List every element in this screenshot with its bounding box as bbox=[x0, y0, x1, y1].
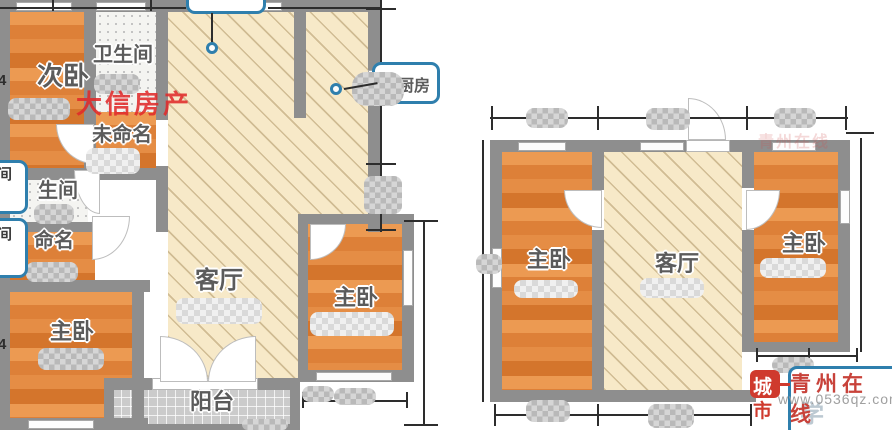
edge-callout-label-bottom: 衣帽间 bbox=[0, 226, 19, 245]
callout-point-marker bbox=[206, 42, 218, 54]
wall bbox=[298, 214, 308, 382]
wall bbox=[742, 140, 754, 352]
mosaic-blur bbox=[514, 280, 578, 298]
wall bbox=[104, 378, 114, 430]
dimension-tick bbox=[756, 348, 758, 362]
callout-point-marker bbox=[330, 83, 342, 95]
dimension-tick bbox=[366, 229, 396, 231]
mosaic-blur bbox=[302, 386, 334, 402]
label-bathroom-mid: 生间 bbox=[28, 174, 88, 203]
dimension-tick bbox=[366, 8, 396, 10]
window bbox=[640, 142, 684, 151]
mosaic-blur bbox=[774, 108, 816, 128]
mosaic-blur bbox=[352, 72, 404, 106]
wall bbox=[0, 280, 150, 292]
dimension-tick bbox=[52, 0, 54, 11]
wall bbox=[290, 378, 300, 430]
label-unnamed-mid: 命名 bbox=[24, 224, 84, 253]
dimension-tick bbox=[406, 392, 408, 408]
mosaic-blur bbox=[364, 176, 402, 214]
dimension-tick bbox=[750, 404, 752, 426]
mosaic-blur bbox=[476, 254, 502, 274]
mosaic-blur bbox=[34, 204, 74, 224]
mosaic-blur bbox=[38, 348, 104, 370]
label2-master-bedroom-right: 主卧 bbox=[766, 226, 842, 258]
seal-char-top: 城 bbox=[753, 372, 772, 399]
window bbox=[518, 142, 566, 151]
wall bbox=[294, 12, 306, 118]
site-seal-logo: 城 bbox=[750, 370, 780, 398]
faint-watermark-tile: 青州在线 bbox=[758, 128, 830, 152]
site-url-watermark: www.0536qz.com bbox=[778, 391, 892, 407]
callout-box-top bbox=[186, 0, 266, 14]
dimension-tick bbox=[597, 404, 599, 426]
mosaic-blur bbox=[310, 312, 394, 336]
seal-char-bottom: 市 bbox=[753, 396, 772, 423]
label-balcony: 阳台 bbox=[178, 384, 246, 416]
mosaic-blur bbox=[760, 258, 826, 278]
edge-callout-label-top: 卫生间 bbox=[0, 166, 19, 185]
dim-digit-left-lower: 4 bbox=[0, 336, 6, 353]
label-bathroom-top: 卫生间 bbox=[84, 38, 162, 67]
wall bbox=[592, 140, 604, 402]
dimension-tick bbox=[597, 106, 599, 130]
dimension-line bbox=[0, 7, 186, 9]
wall bbox=[742, 342, 850, 352]
mosaic-blur bbox=[526, 108, 568, 128]
dimension-tick bbox=[846, 132, 874, 134]
label-unnamed-top: 未命名 bbox=[82, 118, 162, 147]
door-arc bbox=[92, 216, 130, 260]
dimension-tick bbox=[404, 220, 438, 222]
label2-living-room: 客厅 bbox=[644, 246, 710, 278]
edge-callout-box-top: 卫生间 bbox=[0, 160, 28, 214]
dimension-line bbox=[423, 220, 425, 426]
mosaic-blur bbox=[646, 108, 690, 130]
floorplan-image: 厨房 卫生间 衣帽间 次卧 卫生间 未命名 生间 命名 主卧 客厅 主卧 阳台 … bbox=[0, 0, 892, 430]
window bbox=[28, 420, 94, 429]
window bbox=[840, 190, 850, 224]
seal-dash bbox=[780, 383, 790, 386]
mosaic-blur bbox=[526, 400, 570, 422]
wall bbox=[0, 0, 10, 430]
mosaic-blur bbox=[8, 98, 70, 120]
entry-door-arc bbox=[688, 98, 726, 140]
mosaic-blur bbox=[640, 278, 704, 298]
mosaic-blur bbox=[176, 298, 262, 324]
label-living-room: 客厅 bbox=[186, 260, 252, 295]
label2-master-bedroom-left: 主卧 bbox=[516, 242, 582, 274]
dimension-tick bbox=[746, 106, 748, 130]
window bbox=[403, 250, 413, 306]
label-master-bedroom-left: 主卧 bbox=[40, 314, 104, 346]
label-master-bedroom-right: 主卧 bbox=[318, 280, 394, 312]
window bbox=[316, 372, 392, 381]
dimension-tick bbox=[366, 163, 396, 165]
mosaic-blur bbox=[86, 148, 140, 174]
entry-door-sill bbox=[686, 140, 730, 152]
dimension-line bbox=[860, 138, 862, 352]
agency-watermark: 大信房产 bbox=[76, 84, 192, 121]
mosaic-blur bbox=[26, 262, 78, 282]
mosaic-blur bbox=[648, 404, 694, 428]
dimension-tick bbox=[494, 404, 496, 426]
callout-leader bbox=[211, 13, 213, 44]
wall bbox=[132, 280, 144, 430]
dimension-tick bbox=[856, 348, 858, 362]
dimension-line bbox=[268, 7, 380, 9]
dimension-tick bbox=[491, 106, 493, 130]
dimension-tick bbox=[150, 0, 152, 11]
mosaic-blur bbox=[242, 419, 288, 430]
dimension-tick bbox=[845, 106, 847, 130]
mosaic-blur bbox=[334, 388, 376, 405]
dim-digit-left-upper: 4 bbox=[0, 72, 6, 89]
dimension-tick bbox=[404, 424, 438, 426]
wall bbox=[298, 214, 414, 224]
